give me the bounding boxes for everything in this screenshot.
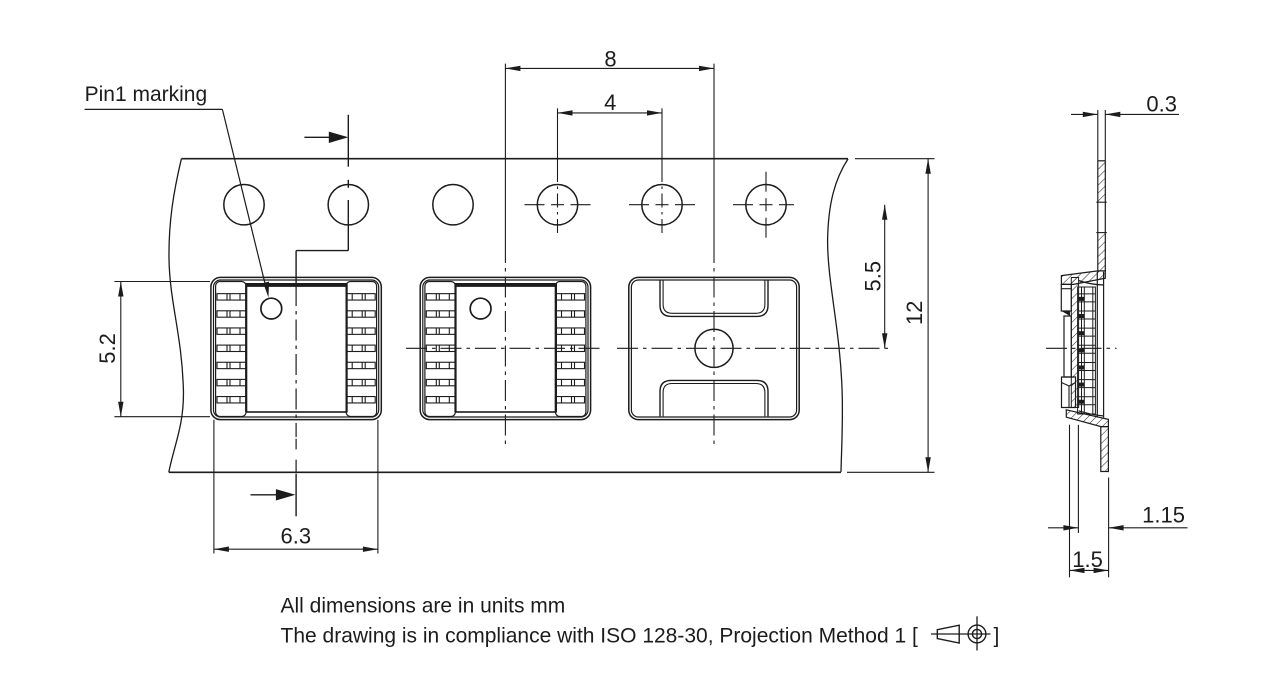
- svg-text:4: 4: [604, 90, 616, 115]
- svg-text:The drawing is in compliance w: The drawing is in compliance with ISO 12…: [281, 625, 918, 648]
- svg-text:8: 8: [604, 47, 616, 72]
- svg-text:1.15: 1.15: [1142, 502, 1185, 527]
- svg-text:All dimensions are in units mm: All dimensions are in units mm: [281, 595, 566, 618]
- svg-text:6.3: 6.3: [281, 523, 312, 548]
- svg-text:]: ]: [994, 625, 1000, 648]
- svg-text:5.5: 5.5: [861, 261, 886, 292]
- svg-text:5.2: 5.2: [95, 333, 120, 364]
- svg-text:Pin1 marking: Pin1 marking: [85, 83, 208, 106]
- svg-text:12: 12: [902, 301, 927, 325]
- svg-text:0.3: 0.3: [1146, 92, 1177, 117]
- svg-text:1.5: 1.5: [1072, 547, 1103, 572]
